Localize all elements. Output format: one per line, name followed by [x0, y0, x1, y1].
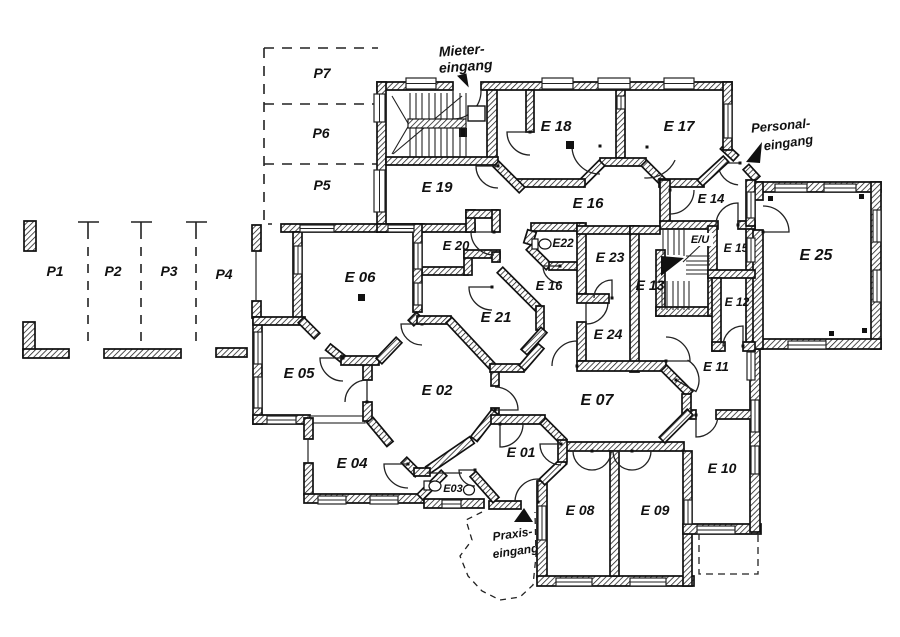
- svg-text:P6: P6: [312, 125, 329, 141]
- svg-text:E 23: E 23: [596, 249, 625, 265]
- svg-text:E 20: E 20: [443, 238, 471, 253]
- svg-text:E 17: E 17: [664, 118, 696, 135]
- svg-text:E/U: E/U: [691, 234, 710, 246]
- svg-text:P2: P2: [104, 263, 121, 279]
- svg-text:P7: P7: [313, 65, 331, 81]
- svg-text:E 12: E 12: [725, 295, 750, 309]
- svg-text:E 05: E 05: [284, 365, 316, 382]
- svg-text:E 21: E 21: [481, 309, 512, 326]
- svg-text:E 16: E 16: [536, 278, 564, 293]
- svg-text:E 11: E 11: [703, 359, 729, 374]
- svg-text:E 24: E 24: [594, 326, 623, 342]
- svg-text:E 06: E 06: [345, 269, 377, 286]
- svg-text:E 09: E 09: [641, 502, 670, 518]
- svg-text:E 02: E 02: [422, 382, 454, 399]
- svg-text:E 07: E 07: [581, 392, 615, 409]
- svg-text:P3: P3: [160, 263, 177, 279]
- svg-text:E 18: E 18: [541, 118, 573, 135]
- svg-text:P5: P5: [313, 177, 330, 193]
- svg-text:E 19: E 19: [422, 179, 454, 196]
- svg-text:E 04: E 04: [337, 455, 369, 472]
- svg-text:E 13: E 13: [636, 277, 665, 293]
- svg-text:E 14: E 14: [698, 191, 726, 206]
- svg-text:E 01: E 01: [507, 444, 536, 460]
- svg-text:E 16: E 16: [573, 195, 605, 212]
- svg-text:E 15: E 15: [724, 241, 749, 255]
- svg-text:E 25: E 25: [800, 247, 834, 264]
- svg-text:P1: P1: [46, 263, 63, 279]
- svg-text:E22: E22: [552, 236, 574, 250]
- svg-text:E 10: E 10: [708, 460, 737, 476]
- svg-text:E 08: E 08: [566, 502, 595, 518]
- svg-text:P4: P4: [215, 266, 232, 282]
- svg-text:E03: E03: [443, 483, 463, 495]
